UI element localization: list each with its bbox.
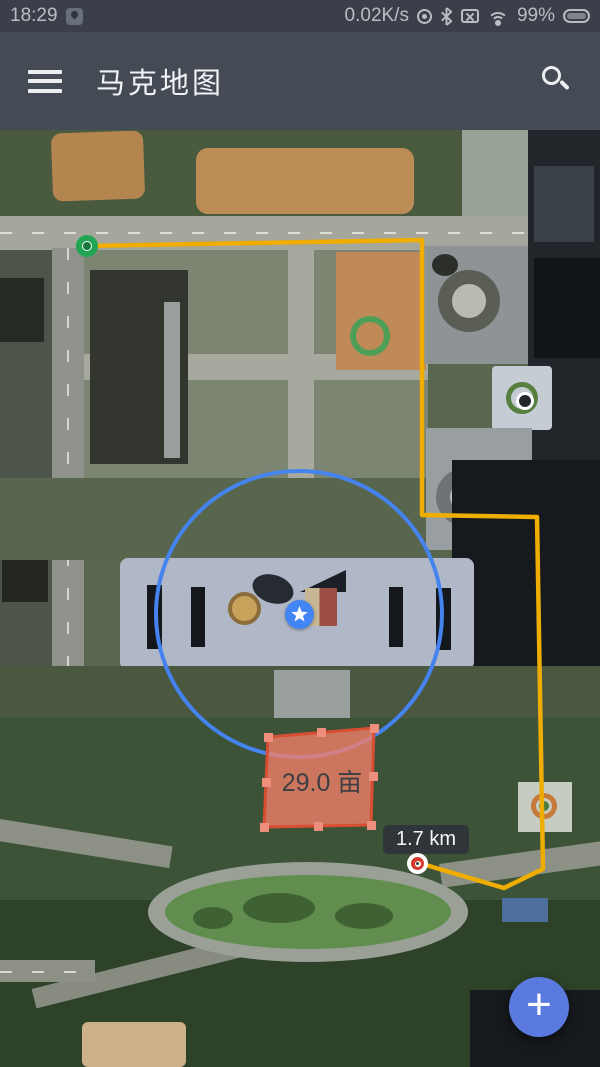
star-icon [291,606,308,623]
bluetooth-icon [440,7,453,26]
area-measurement-label: 29.0 亩 [242,763,402,799]
plus-icon: + [526,983,552,1027]
map-building-dark [534,258,600,358]
battery-icon [563,9,590,23]
satellite-map[interactable]: 29.0 亩 1.7 km + [0,130,600,1067]
map-glass-tower-dark [452,460,600,694]
add-fab-button[interactable]: + [509,977,569,1037]
star-marker[interactable] [285,600,314,629]
map-fountain-plaza [518,782,572,832]
map-dirt-patch [196,148,414,214]
menu-icon[interactable] [28,64,62,98]
status-bar: 18:29 0.02K/s 99% [0,0,600,32]
map-building-dark [0,278,44,342]
network-speed: 0.02K/s [345,5,409,27]
map-helipad-tower [492,366,552,430]
no-sim-icon [461,9,479,23]
app-title: 马克地图 [96,60,224,102]
map-building-roof [534,166,594,242]
phone-screen: 18:29 0.02K/s 99% 马克地图 [0,0,600,1067]
map-stadium-field [165,875,451,949]
map-dirt-patch [51,130,145,201]
wifi-icon [487,8,509,24]
map-blue-roof-building [502,898,548,922]
battery-percent: 99% [517,5,555,27]
route-end-marker[interactable] [407,853,428,874]
distance-measurement-badge: 1.7 km [383,825,469,854]
hotspot-icon [417,9,432,24]
app-bar: 马克地图 [0,32,600,130]
search-icon[interactable] [540,64,574,98]
map-green-ring [350,316,390,356]
map-road-overpass [0,960,95,982]
map-museum-roof [164,302,180,458]
map-notification-icon [66,8,83,25]
map-round-building [424,246,528,364]
map-sand-lot [82,1022,186,1067]
map-stairs-plaza [274,670,350,720]
route-start-marker[interactable] [76,235,98,257]
clock: 18:29 [10,5,58,27]
